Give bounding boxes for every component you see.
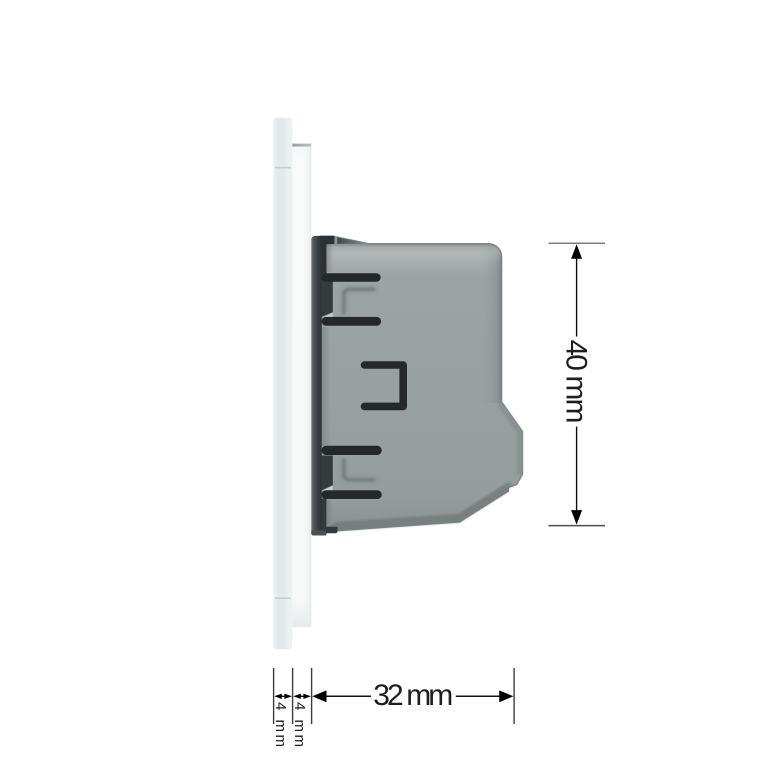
svg-text:4 mm: 4 mm bbox=[272, 702, 289, 747]
svg-text:4 mm: 4 mm bbox=[291, 702, 308, 747]
svg-text:32 mm: 32 mm bbox=[373, 679, 453, 712]
svg-text:40 mm: 40 mm bbox=[560, 340, 593, 424]
